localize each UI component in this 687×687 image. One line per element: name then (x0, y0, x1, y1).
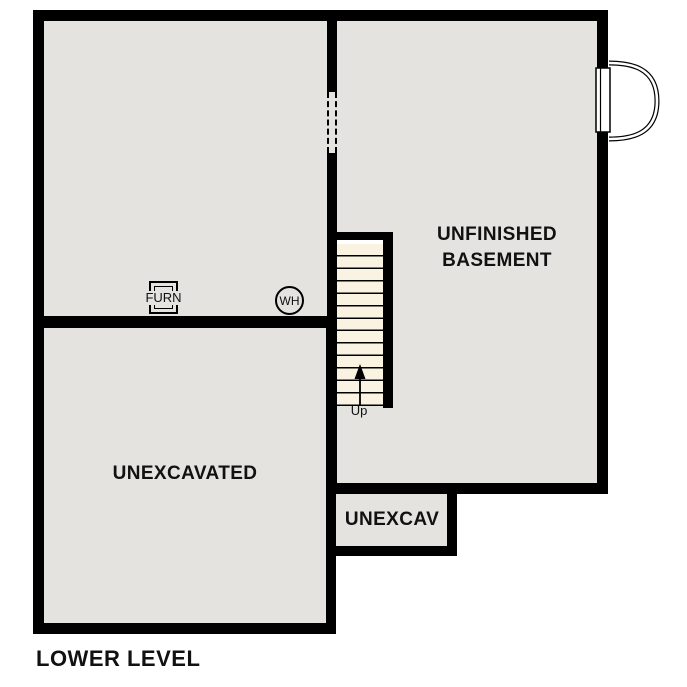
stairwell-right-wall (383, 232, 393, 408)
room-label-line2: BASEMENT (397, 248, 597, 274)
room-label-unexcav: UNEXCAV (316, 507, 468, 533)
dashed-wall-opening (327, 92, 337, 153)
room-label-line1: UNFINISHED (397, 222, 597, 248)
room-label-unfinished-basement: UNFINISHED BASEMENT (397, 222, 597, 274)
window-well-icon (590, 50, 670, 154)
water-heater-label: WH (280, 294, 300, 308)
room-label-unexcavated: UNEXCAVATED (85, 461, 285, 487)
floor-plan-canvas: FURN WH UNFINISHED BASEMENT UNEXCAVATED … (0, 0, 687, 687)
up-arrow-icon (349, 358, 371, 408)
furnace-label: FURN (141, 291, 186, 305)
plan-title: LOWER LEVEL (36, 646, 200, 672)
stairs-up-label: Up (344, 403, 374, 418)
room-top-left (44, 21, 327, 316)
water-heater-icon: WH (275, 286, 304, 315)
